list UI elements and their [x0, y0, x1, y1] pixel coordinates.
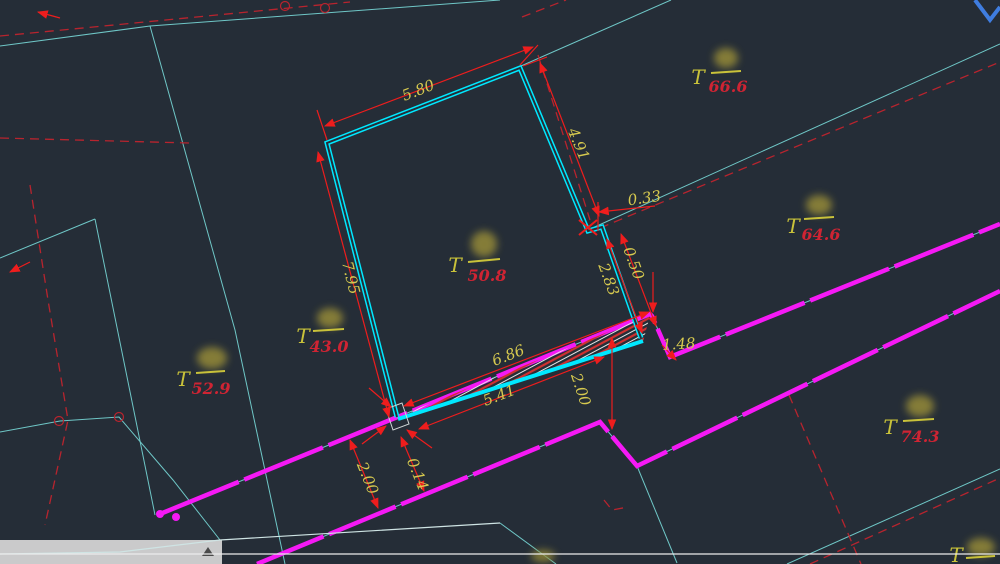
corner-arrow[interactable] [369, 388, 391, 407]
blurred-number [471, 231, 497, 257]
parcel-area[interactable]: 66.6 [709, 77, 748, 96]
dashed-corner-mark[interactable] [604, 500, 628, 510]
blurred-number [714, 48, 738, 68]
blurred-number [317, 308, 343, 328]
parcel-labels[interactable]: T 50.8 T 66.6 T 64.6 T 43.0 T 52.9 [176, 48, 995, 564]
parcel-t: T [786, 214, 801, 238]
dim-text-0-50[interactable]: 0.50 [620, 245, 648, 283]
parcel-t: T [691, 65, 706, 89]
dim-text-2-83[interactable]: 2.83 [594, 260, 623, 298]
survey-point[interactable] [281, 2, 290, 11]
parcel-line-under-road-upper[interactable] [160, 224, 1000, 514]
parcel-label-top-right[interactable]: T 66.6 [691, 48, 747, 96]
parcel-label-mid-right[interactable]: T 64.6 [786, 195, 840, 244]
blurred-number [197, 347, 227, 369]
dimension-texts[interactable]: 5.80 4.91 0.33 0.50 2.83 7.95 6.86 5.41 … [338, 76, 696, 498]
dim-text-0-33[interactable]: 0.33 [627, 187, 663, 209]
drawing-canvas[interactable]: 5.80 4.91 0.33 0.50 2.83 7.95 6.86 5.41 … [0, 0, 1000, 564]
dim-text-2-00-left[interactable]: 2.00 [353, 458, 383, 497]
blue-utility-line[interactable] [975, 0, 1000, 20]
parcel-label-bottom-edge[interactable]: T [949, 538, 995, 564]
dim-text-1-48[interactable]: 1.48 [662, 334, 696, 354]
fraction-bar [468, 259, 500, 262]
parcel-area[interactable]: 50.8 [468, 266, 507, 285]
road-edge-upper[interactable] [160, 224, 1000, 514]
dashed-left-curve[interactable] [30, 185, 68, 525]
parcel-line-left-vertical[interactable] [150, 26, 285, 564]
parcel-area[interactable]: 64.6 [802, 225, 841, 244]
parcel-line-top[interactable] [0, 0, 500, 46]
parcel-t: T [176, 367, 191, 391]
parcel-label-center[interactable]: T 50.8 [448, 231, 506, 285]
cad-viewport[interactable]: 5.80 4.91 0.33 0.50 2.83 7.95 6.86 5.41 … [0, 0, 1000, 564]
parcel-area[interactable]: 74.3 [901, 427, 940, 446]
dim-text-4-91[interactable]: 4.91 [563, 124, 593, 163]
parcel-curve-bottom-left[interactable] [0, 417, 220, 540]
parcel-label-mid-left[interactable]: T 43.0 [296, 308, 348, 356]
fraction-bar [313, 329, 344, 331]
fraction-bar [196, 371, 225, 373]
dashed-left-horizontal[interactable] [0, 138, 190, 143]
dim-extension-lines [317, 45, 598, 231]
survey-point[interactable] [321, 4, 330, 13]
top-left-arrow[interactable] [38, 12, 60, 18]
road-endpoint-dot[interactable] [172, 513, 180, 521]
parcel-t: T [448, 253, 463, 277]
road-endpoint-dot[interactable] [156, 510, 164, 518]
parcel-line-left-lower[interactable] [95, 219, 155, 515]
fraction-bar [966, 556, 995, 558]
parcel-line-left-short[interactable] [0, 219, 95, 258]
blurred-number [806, 195, 832, 215]
parcel-area[interactable]: 52.9 [192, 379, 231, 398]
blurred-number [906, 395, 934, 417]
parcel-area[interactable]: 43.0 [310, 337, 349, 356]
survey-point-markers[interactable] [55, 2, 330, 426]
parcel-line-road-branch[interactable] [637, 466, 677, 563]
blurred-number [967, 538, 995, 556]
dashed-top-right[interactable] [522, 0, 566, 17]
corner-arrow[interactable] [407, 430, 432, 448]
parcel-label-lower-left[interactable]: T 52.9 [176, 347, 230, 398]
statusbar-corner[interactable] [0, 523, 1000, 564]
parcel-line-topright-extension[interactable] [521, 0, 671, 66]
parcel-label-lower-right[interactable]: T 74.3 [883, 395, 939, 446]
parcel-t: T [883, 415, 898, 439]
fraction-bar [804, 217, 834, 219]
dashed-bottom-right-vertical[interactable] [789, 395, 861, 564]
fraction-bar [903, 419, 934, 421]
blurred-spot-bottom [531, 550, 555, 562]
dashed-top-left[interactable] [0, 2, 350, 36]
left-edge-arrow[interactable] [10, 262, 30, 272]
fraction-bar [711, 71, 741, 73]
dim-text-2-00-right[interactable]: 2.00 [567, 370, 595, 409]
dim-text-0-14[interactable]: 0.14 [403, 455, 432, 493]
